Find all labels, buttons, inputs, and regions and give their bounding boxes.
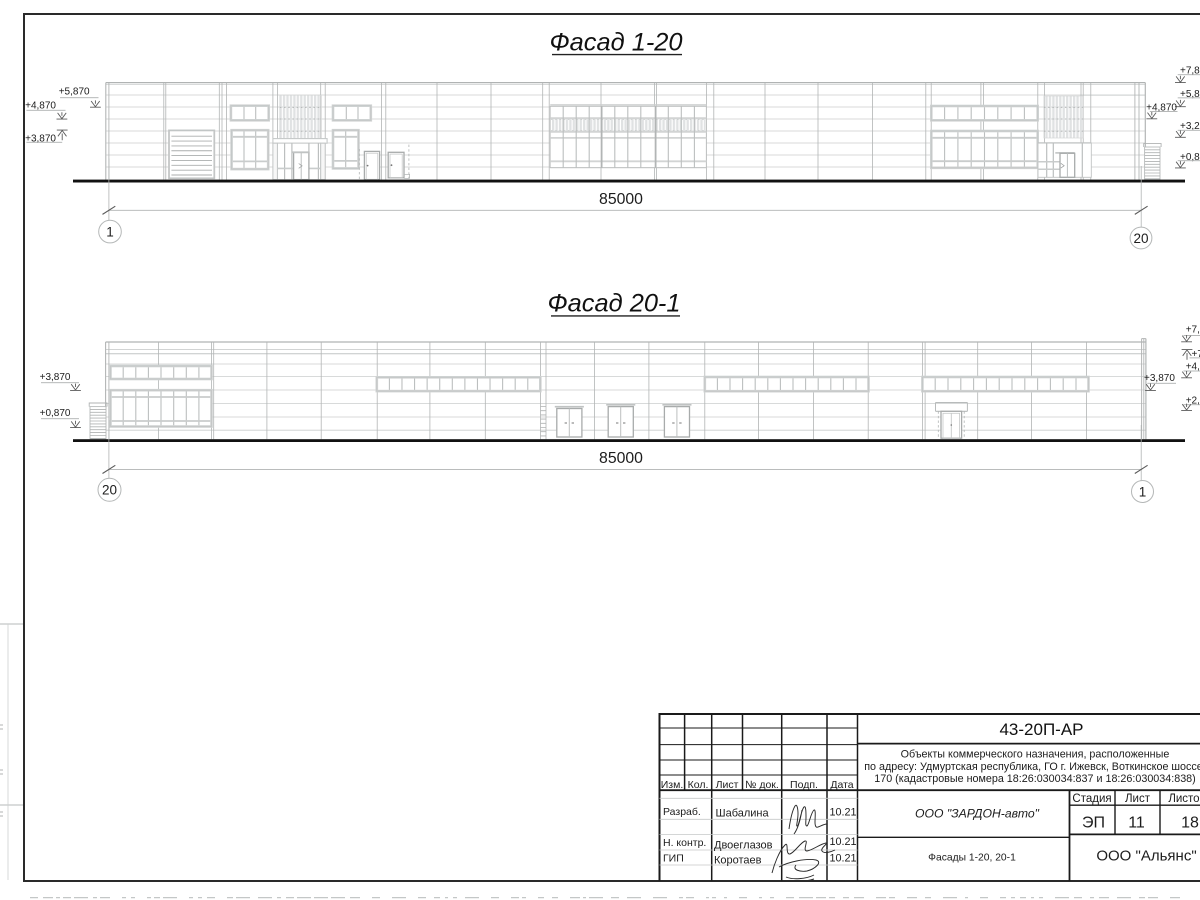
svg-text:Стадия: Стадия bbox=[1072, 793, 1111, 805]
svg-text:10.21: 10.21 bbox=[830, 853, 857, 865]
svg-text:Дата: Дата bbox=[830, 779, 853, 791]
svg-text:+4,870: +4,870 bbox=[25, 100, 56, 111]
svg-text:18: 18 bbox=[1181, 814, 1199, 831]
svg-text:ООО "ЗАРДОН-авто": ООО "ЗАРДОН-авто" bbox=[915, 807, 1040, 821]
svg-text:+3,870: +3,870 bbox=[1144, 373, 1175, 384]
svg-text:ООО "Альянс": ООО "Альянс" bbox=[1096, 848, 1196, 865]
svg-text:Подп.: Подп. bbox=[790, 779, 818, 791]
svg-text:43-20П-АР: 43-20П-АР bbox=[999, 720, 1083, 739]
svg-text:Фасад 20-1: Фасад 20-1 bbox=[547, 290, 680, 318]
svg-text:11: 11 bbox=[1128, 814, 1145, 831]
svg-text:Коротаев: Коротаев bbox=[714, 854, 762, 866]
svg-text:Шабалина: Шабалина bbox=[716, 808, 770, 820]
svg-text:ГИП: ГИП bbox=[663, 852, 684, 864]
svg-text:Фасады 1-20, 20-1: Фасады 1-20, 20-1 bbox=[928, 852, 1016, 863]
svg-text:1: 1 bbox=[1139, 484, 1147, 499]
svg-text:20: 20 bbox=[102, 483, 117, 498]
svg-text:Двоеглазов: Двоеглазов bbox=[714, 840, 773, 852]
svg-text:+5,870: +5,870 bbox=[59, 87, 90, 98]
svg-text:1: 1 bbox=[106, 224, 114, 239]
svg-text:Лист: Лист bbox=[1125, 793, 1151, 805]
svg-text:85000: 85000 bbox=[599, 450, 643, 467]
svg-text:20: 20 bbox=[1133, 231, 1148, 246]
svg-text:10.21: 10.21 bbox=[830, 836, 857, 848]
svg-text:Фасад 1-20: Фасад 1-20 bbox=[549, 29, 682, 57]
svg-text:Листов: Листов bbox=[1168, 793, 1200, 805]
svg-text:Н. контр.: Н. контр. bbox=[663, 837, 706, 849]
svg-text:+0,870: +0,870 bbox=[40, 408, 71, 419]
svg-text:170 (кадастровые номера 18:26:: 170 (кадастровые номера 18:26:030034:837… bbox=[874, 773, 1195, 785]
svg-text:по адресу: Удмуртская республи: по адресу: Удмуртская республика, ГО г. … bbox=[864, 761, 1200, 773]
svg-text:Объекты коммерческого назначен: Объекты коммерческого назначения, распол… bbox=[901, 748, 1170, 760]
svg-text:+3,870: +3,870 bbox=[40, 372, 71, 383]
svg-text:Изм.: Изм. bbox=[661, 779, 684, 791]
svg-text:Кол.: Кол. bbox=[688, 779, 709, 791]
svg-text:Лист: Лист bbox=[716, 779, 739, 791]
svg-text:ЭП: ЭП bbox=[1082, 814, 1105, 831]
svg-text:+7,870: +7,870 bbox=[1186, 325, 1200, 336]
svg-text:10.21: 10.21 bbox=[830, 807, 857, 819]
svg-text:№ док.: № док. bbox=[745, 779, 779, 791]
svg-text:Разраб.: Разраб. bbox=[663, 806, 701, 818]
svg-text:+3,870: +3,870 bbox=[25, 133, 56, 144]
svg-text:85000: 85000 bbox=[599, 191, 643, 208]
